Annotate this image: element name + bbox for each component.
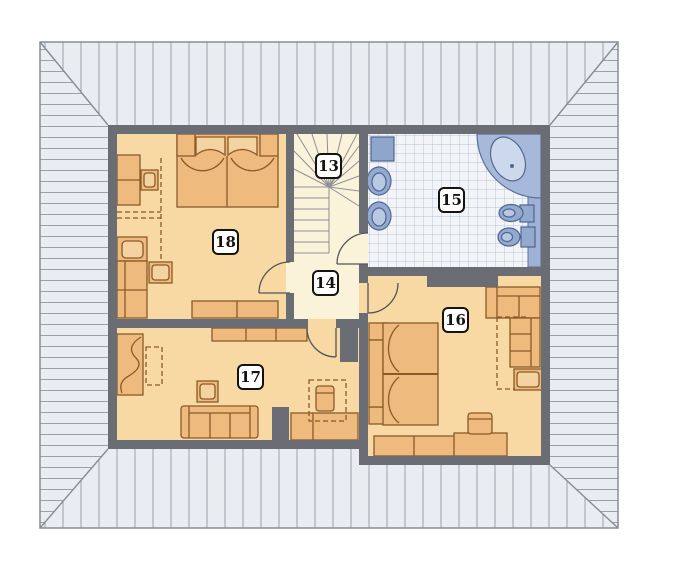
- exterior-wall-right: [541, 125, 550, 465]
- washing-machine: [371, 137, 394, 161]
- room-label-13: 13: [315, 153, 342, 179]
- wall-room18-stairs: [286, 134, 294, 262]
- bidet: [499, 205, 534, 223]
- bathtub-drain: [510, 164, 514, 168]
- exterior-wall-bottom-right: [359, 456, 550, 465]
- wall-room17-room16: [359, 313, 368, 465]
- desk: [454, 433, 507, 456]
- exterior-wall-left: [108, 125, 117, 449]
- desk-chair: [316, 386, 334, 411]
- bed-headboard: [369, 340, 383, 407]
- wall-pier-bathroom: [427, 267, 498, 287]
- corner-sofa-top: [486, 287, 540, 318]
- dresser: [291, 413, 358, 440]
- exterior-wall-bottom-left: [108, 440, 359, 449]
- three-seat-sofa: [181, 406, 258, 438]
- roof-plane-east: [550, 42, 618, 528]
- desk-chair: [468, 413, 492, 434]
- sideboard: [192, 301, 278, 318]
- floor-plan-page: 13 14 15 16 17 18: [0, 0, 700, 570]
- room-label-18: 18: [212, 229, 239, 255]
- wall-room17-north: [117, 319, 308, 328]
- toilet: [498, 227, 535, 247]
- room-label-17: 17: [237, 364, 264, 390]
- room-label-16: 16: [442, 307, 469, 333]
- low-cabinet-row: [212, 328, 307, 341]
- bed-head-cabinet: [260, 134, 278, 156]
- wall-pier-room17: [340, 328, 358, 362]
- roof-plane-north: [40, 42, 618, 125]
- room-label-15: 15: [438, 187, 465, 213]
- wall-bathroom-left: [359, 134, 368, 233]
- floor-plan-canvas: [0, 0, 700, 570]
- chimney-pier: [272, 407, 289, 440]
- wall-hall-room16-stub: [359, 264, 368, 283]
- corner-sofa-right: [510, 318, 540, 367]
- washbasin: [367, 202, 391, 230]
- washbasin: [367, 167, 391, 195]
- roof-plane-west: [40, 42, 108, 528]
- bed-head-cabinet: [177, 134, 195, 156]
- exterior-wall-top: [108, 125, 550, 134]
- wall-room17-north-right: [336, 319, 359, 328]
- room-label-14: 14: [312, 270, 339, 296]
